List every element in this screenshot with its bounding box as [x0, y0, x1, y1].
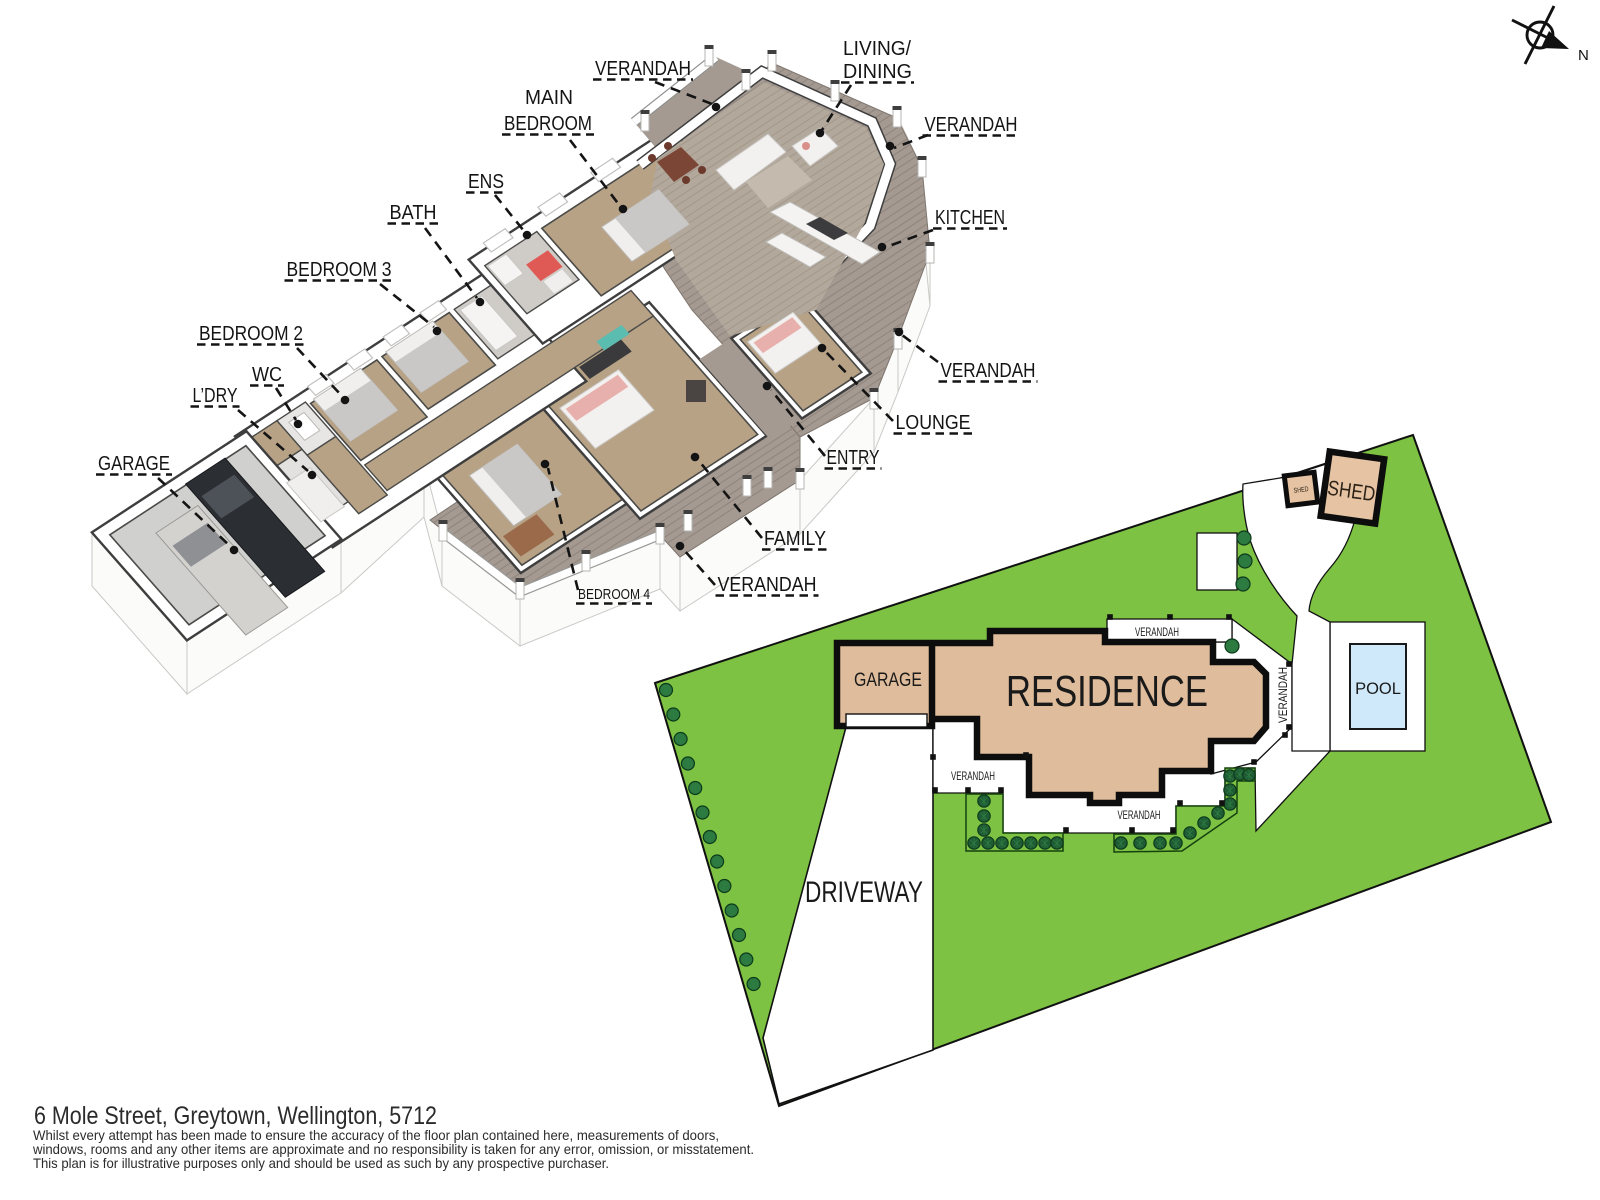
svg-text:VERANDAH: VERANDAH [595, 58, 691, 80]
svg-text:Whilst every attempt has been: Whilst every attempt has been made to en… [33, 1128, 719, 1143]
svg-text:ENS: ENS [468, 171, 504, 193]
svg-text:VERANDAH: VERANDAH [718, 574, 817, 596]
svg-text:BEDROOM: BEDROOM [504, 113, 592, 135]
svg-text:WC: WC [252, 364, 282, 386]
svg-text:L’DRY: L’DRY [193, 385, 238, 407]
svg-text:BEDROOM 2: BEDROOM 2 [199, 323, 303, 345]
svg-text:N: N [1578, 47, 1589, 64]
svg-text:LIVING/: LIVING/ [843, 38, 911, 60]
svg-text:This plan is for illustrative: This plan is for illustrative purposes o… [33, 1156, 609, 1171]
svg-text:GARAGE: GARAGE [98, 453, 170, 475]
svg-text:KITCHEN: KITCHEN [935, 207, 1005, 229]
svg-text:VERANDAH: VERANDAH [941, 360, 1036, 382]
svg-text:VERANDAH: VERANDAH [1118, 808, 1161, 822]
svg-text:RESIDENCE: RESIDENCE [1006, 667, 1208, 716]
svg-text:BATH: BATH [390, 202, 437, 224]
svg-text:LOUNGE: LOUNGE [896, 412, 971, 434]
svg-text:VERANDAH: VERANDAH [1276, 667, 1290, 723]
svg-text:MAIN: MAIN [525, 87, 573, 109]
svg-text:VERANDAH: VERANDAH [925, 114, 1018, 136]
svg-text:VERANDAH: VERANDAH [951, 769, 995, 783]
svg-text:POOL: POOL [1355, 680, 1401, 698]
svg-text:ENTRY: ENTRY [827, 447, 880, 469]
svg-text:FAMILY: FAMILY [764, 528, 826, 550]
svg-text:DINING: DINING [843, 61, 912, 83]
svg-text:6 Mole Street, Greytown, Welli: 6 Mole Street, Greytown, Wellington, 571… [34, 1102, 437, 1130]
svg-text:VERANDAH: VERANDAH [1135, 625, 1179, 639]
svg-text:BEDROOM 3: BEDROOM 3 [287, 259, 392, 281]
svg-text:DRIVEWAY: DRIVEWAY [805, 876, 923, 909]
svg-text:BEDROOM 4: BEDROOM 4 [578, 586, 650, 603]
svg-text:windows, rooms and any other i: windows, rooms and any other items are a… [32, 1142, 754, 1157]
svg-text:GARAGE: GARAGE [854, 670, 922, 691]
